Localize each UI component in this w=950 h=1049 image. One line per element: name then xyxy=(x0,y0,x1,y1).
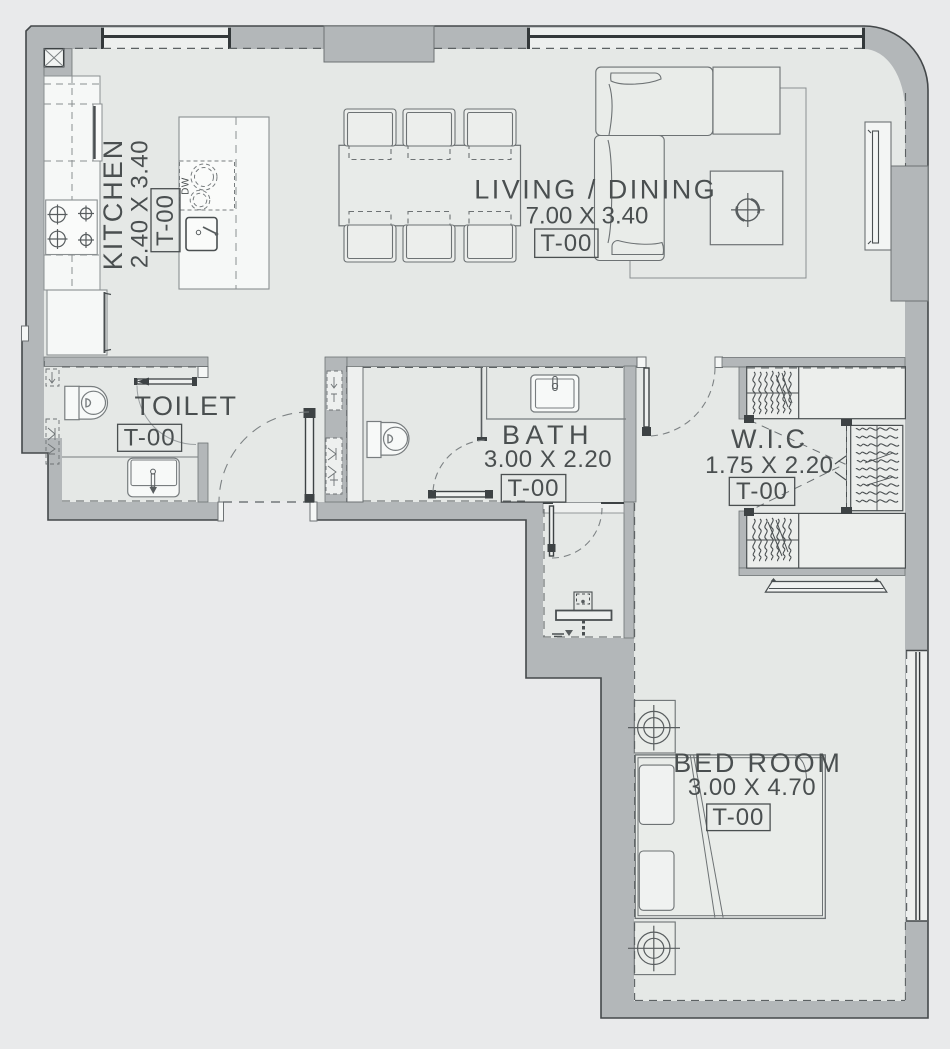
svg-text:7.00 X 3.40: 7.00 X 3.40 xyxy=(526,202,649,229)
svg-text:2.40 X 3.40: 2.40 X 3.40 xyxy=(127,140,154,268)
svg-text:DW: DW xyxy=(181,177,192,195)
svg-text:T-00: T-00 xyxy=(712,804,764,831)
svg-text:KITCHEN: KITCHEN xyxy=(98,138,128,271)
svg-text:3.00 X 2.20: 3.00 X 2.20 xyxy=(484,446,612,473)
svg-text:LIVING / DINING: LIVING / DINING xyxy=(474,175,717,205)
svg-text:T-00: T-00 xyxy=(736,478,788,505)
svg-text:1.75 X 2.20: 1.75 X 2.20 xyxy=(705,452,833,479)
svg-text:3.00 X 4.70: 3.00 X 4.70 xyxy=(688,774,816,801)
svg-text:T-00: T-00 xyxy=(124,425,176,452)
svg-text:T-00: T-00 xyxy=(152,194,179,246)
svg-text:W.I.C: W.I.C xyxy=(731,424,807,454)
svg-text:T-00: T-00 xyxy=(540,230,592,257)
svg-text:TOILET: TOILET xyxy=(134,391,237,421)
svg-text:T-00: T-00 xyxy=(507,475,559,502)
